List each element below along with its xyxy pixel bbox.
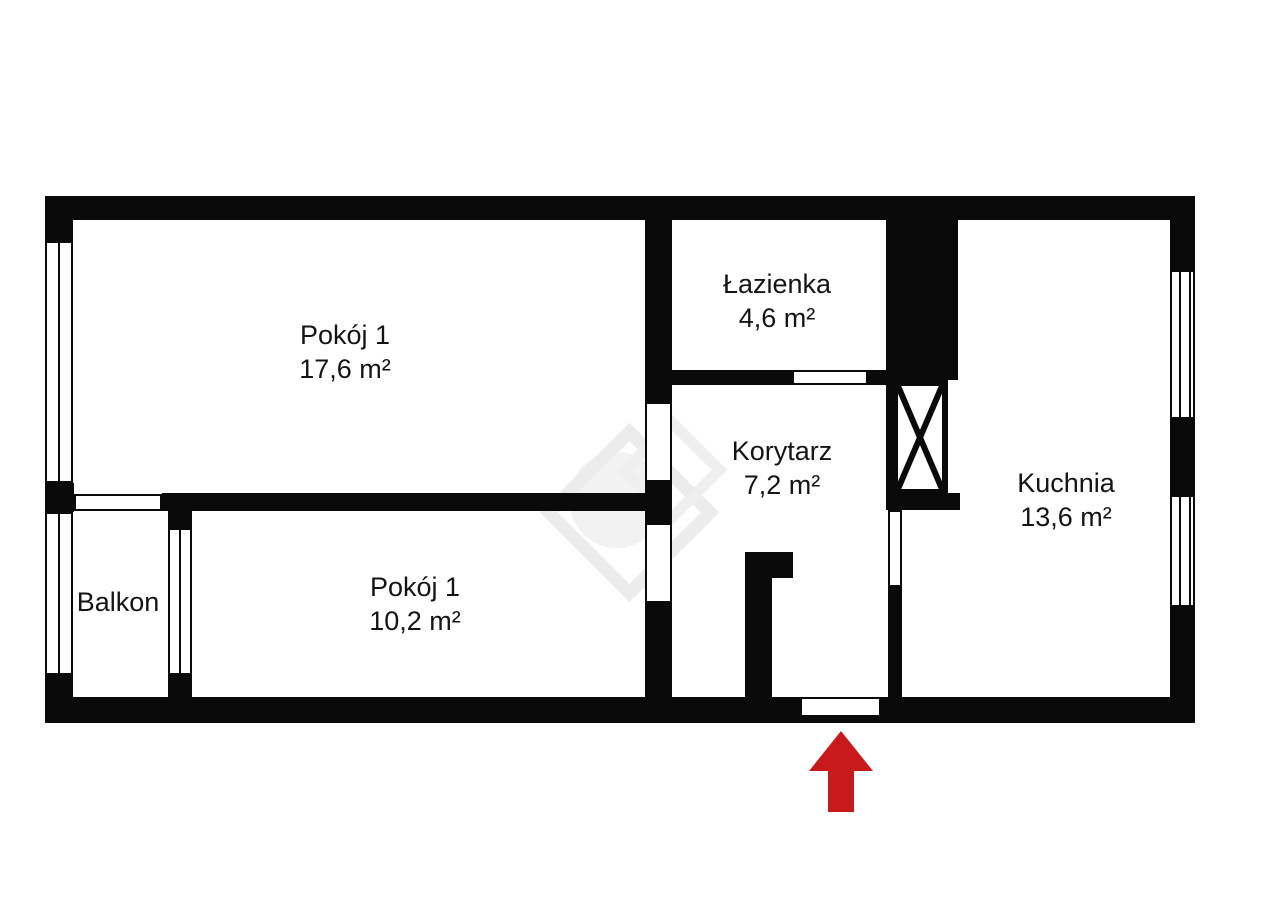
wall-right-top bbox=[1170, 220, 1195, 270]
room-area: 17,6 m² bbox=[299, 352, 391, 386]
room-label-balkon: Balkon bbox=[77, 585, 160, 619]
door-lazienka bbox=[792, 370, 868, 385]
wall-korytarz-stub-vertical bbox=[745, 552, 772, 697]
entrance-arrow-shape bbox=[809, 731, 873, 812]
room-area: 7,2 m² bbox=[732, 468, 833, 502]
room-label-lazienka: Łazienka 4,6 m² bbox=[723, 267, 831, 335]
window-balkon-railing bbox=[45, 512, 73, 675]
room-area: 4,6 m² bbox=[723, 301, 831, 335]
shaft-symbol bbox=[892, 380, 948, 495]
room-label-pokoj-1-dolny: Pokój 1 10,2 m² bbox=[369, 570, 461, 638]
window-kuchnia-right-1 bbox=[1170, 270, 1195, 419]
room-area: 10,2 m² bbox=[369, 604, 461, 638]
wall-right-bottom bbox=[1170, 607, 1195, 697]
room-label-kuchnia: Kuchnia 13,6 m² bbox=[1017, 466, 1115, 534]
wall-central-top bbox=[645, 220, 672, 402]
door-pokoj1-gorny bbox=[645, 402, 672, 482]
wall-duct-column bbox=[886, 220, 958, 380]
room-name: Pokój 1 bbox=[369, 570, 461, 604]
window-pokoj1-gorny-left bbox=[45, 241, 73, 483]
room-name: Pokój 1 bbox=[299, 318, 391, 352]
wall-central-junction bbox=[645, 482, 672, 523]
room-label-pokoj-1-gorny: Pokój 1 17,6 m² bbox=[299, 318, 391, 386]
room-label-korytarz: Korytarz 7,2 m² bbox=[732, 434, 833, 502]
room-name: Balkon bbox=[77, 585, 160, 619]
floorplan-canvas: Pokój 1 17,6 m² Łazienka 4,6 m² Korytarz… bbox=[0, 0, 1269, 900]
room-name: Korytarz bbox=[732, 434, 833, 468]
wall-bottom bbox=[45, 697, 1195, 723]
wall-balkon-stub-top bbox=[168, 508, 192, 528]
door-entrance bbox=[800, 697, 881, 717]
window-mullion bbox=[58, 243, 60, 481]
shaft-x-icon bbox=[898, 386, 942, 489]
window-mullion bbox=[58, 514, 60, 673]
room-area: 13,6 m² bbox=[1017, 500, 1115, 534]
window-mullion bbox=[1179, 272, 1191, 417]
wall-left-top-corner bbox=[45, 196, 73, 241]
wall-top bbox=[45, 196, 1195, 220]
window-mullion bbox=[1179, 497, 1191, 605]
room-name: Łazienka bbox=[723, 267, 831, 301]
entrance-arrow-icon bbox=[806, 726, 876, 814]
window-balkon-pokoj bbox=[168, 528, 192, 675]
window-mullion bbox=[179, 530, 181, 673]
wall-left-bottom-corner bbox=[45, 675, 73, 697]
window-kuchnia-right-2 bbox=[1170, 495, 1195, 607]
wall-korytarz-kuchnia bbox=[888, 587, 902, 697]
wall-balkon-stub-bottom bbox=[168, 675, 192, 697]
door-kuchnia bbox=[888, 510, 902, 587]
wall-below-shaft bbox=[886, 493, 960, 510]
room-name: Kuchnia bbox=[1017, 466, 1115, 500]
wall-right-middle bbox=[1170, 419, 1195, 495]
door-pokoj1-dolny bbox=[645, 523, 672, 603]
wall-room-divider bbox=[162, 493, 672, 511]
wall-central-bottom bbox=[645, 603, 672, 697]
window-pokoj1-balkon-strip bbox=[74, 494, 162, 511]
wall-left-junction bbox=[45, 483, 74, 512]
